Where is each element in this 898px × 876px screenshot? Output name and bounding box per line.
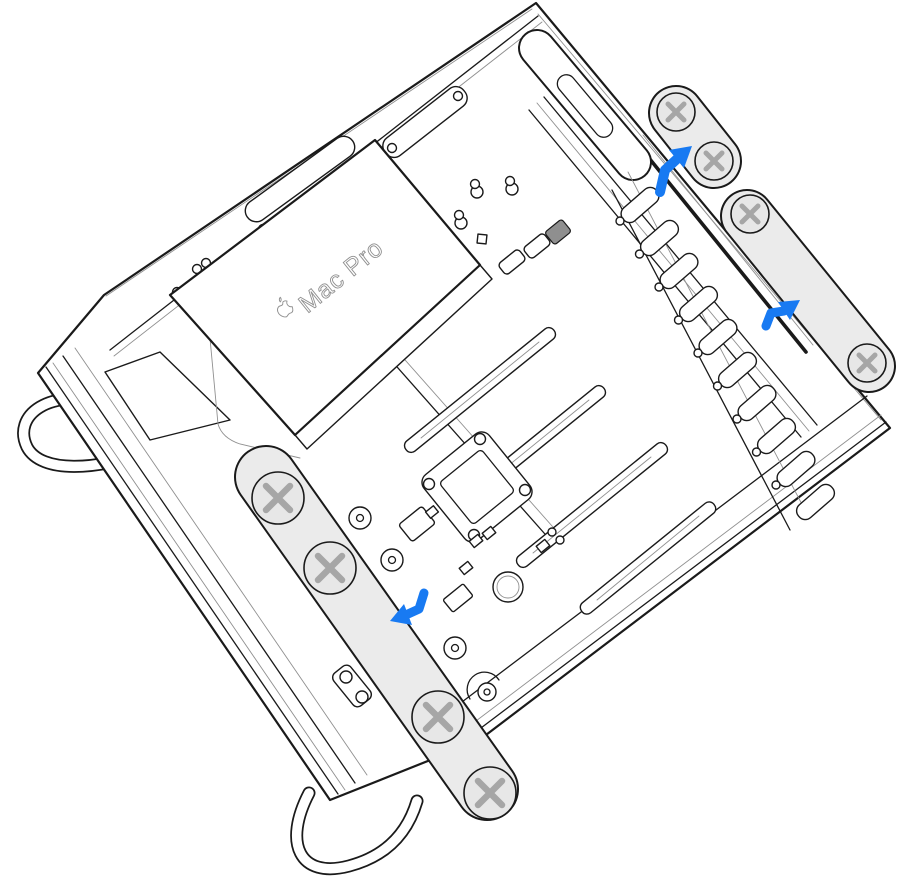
slide-rail-screw (731, 195, 769, 233)
slide-rail-screw (412, 691, 464, 743)
battery (493, 572, 523, 602)
bracket-screw (695, 142, 733, 180)
slide-rail-screw (252, 472, 304, 524)
technical-drawing: Mac Pro (0, 0, 898, 876)
bracket-screw (657, 93, 695, 131)
mac-pro-illustration: Mac Pro (0, 0, 898, 876)
slide-rail-screw (304, 542, 356, 594)
slide-rail-screw (848, 344, 886, 382)
slide-rail-screw (464, 767, 516, 819)
foot-bottom-icon (297, 793, 417, 869)
